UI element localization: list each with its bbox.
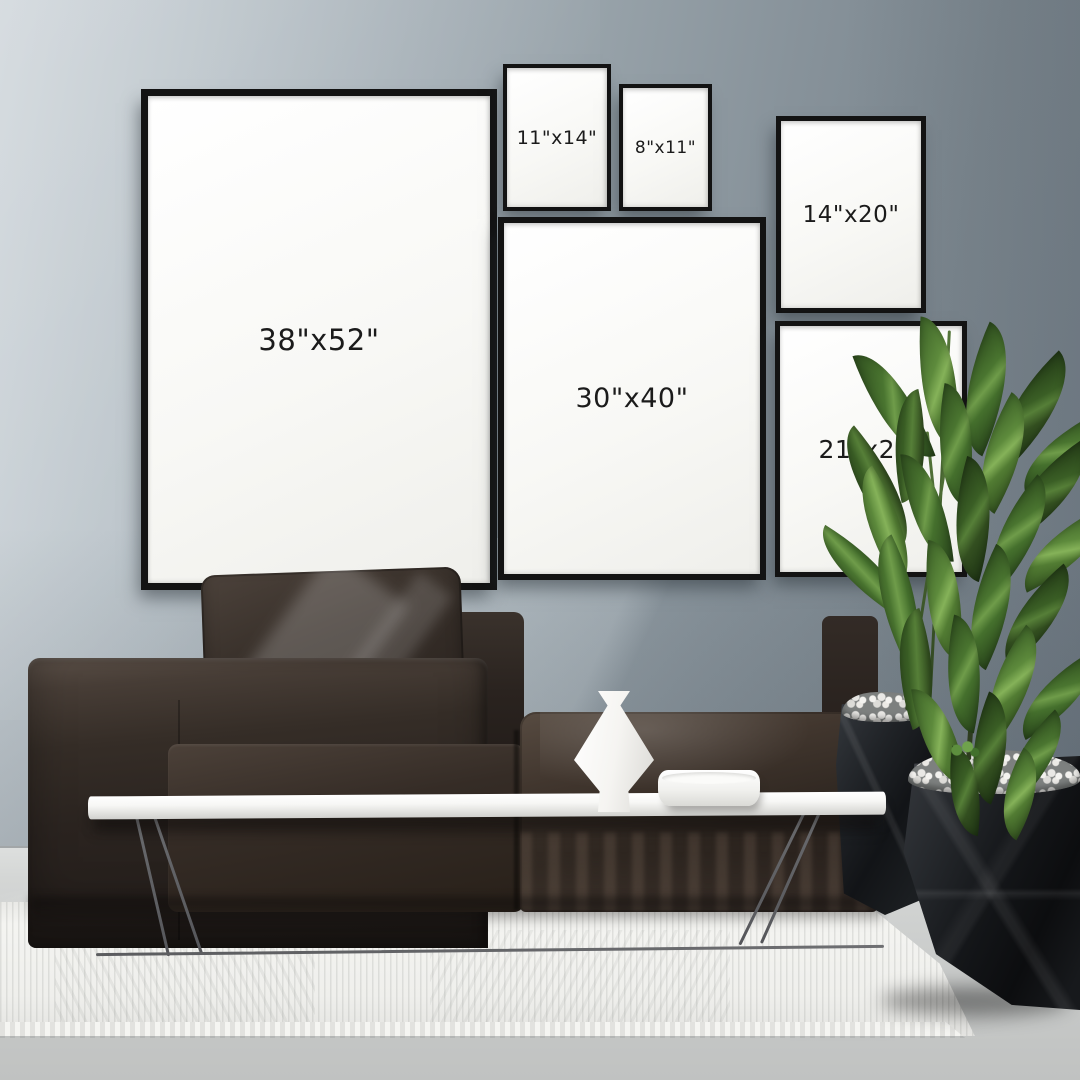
rug-braided-edge (0, 1022, 985, 1038)
frame-size-label: 30"x40" (575, 383, 688, 414)
frame-mat: 11"x14" (507, 68, 607, 207)
frame-size-label: 14"x20" (803, 202, 900, 228)
white-bowl (658, 770, 760, 806)
bowl-rim (662, 772, 756, 784)
frame-mat: 38"x52" (148, 96, 490, 583)
succulent-sprig (946, 738, 982, 760)
frame-mat: 14"x20" (781, 121, 921, 308)
frame-14x20: 14"x20" (776, 116, 926, 313)
frame-size-label: 11"x14" (517, 127, 598, 149)
frame-30x40: 30"x40" (498, 217, 766, 580)
frame-11x14: 11"x14" (503, 64, 611, 211)
frame-38x52: 38"x52" (141, 89, 497, 590)
frame-size-label: 38"x52" (258, 323, 379, 357)
frame-mat: 8"x11" (623, 88, 708, 207)
coffee-table-top (88, 792, 886, 820)
frame-mat: 30"x40" (504, 223, 760, 574)
living-room-frame-size-mockup: 38"x52" 11"x14" 8"x11" 14"x20" 30"x40" 2… (0, 0, 1080, 1080)
frame-size-label: 8"x11" (635, 138, 696, 158)
frame-8x11: 8"x11" (619, 84, 712, 211)
